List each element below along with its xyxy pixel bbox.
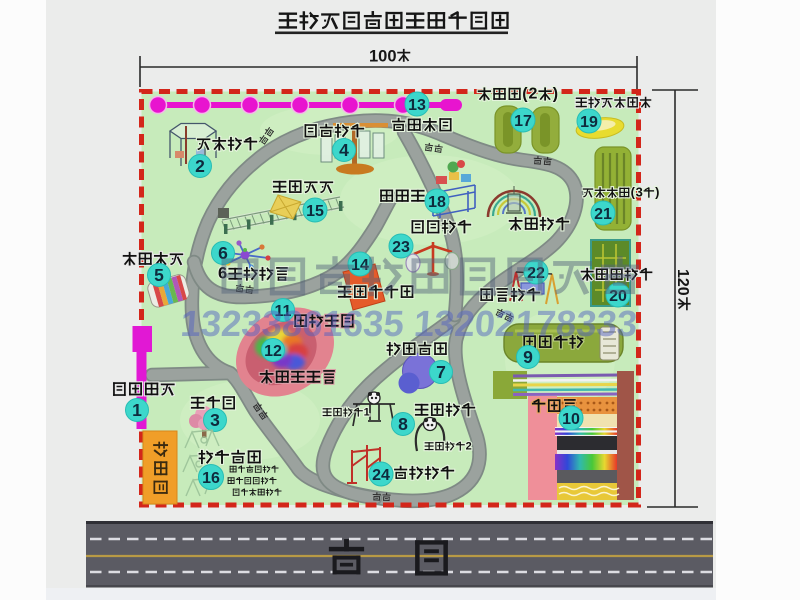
svg-text:10: 10 (562, 411, 580, 428)
svg-text:21: 21 (594, 206, 612, 223)
svg-text:13233861635 13202178333: 13233861635 13202178333 (179, 303, 638, 344)
svg-text:3: 3 (636, 184, 643, 199)
svg-text:3: 3 (210, 410, 220, 430)
svg-text:12: 12 (264, 343, 282, 360)
svg-text:9: 9 (523, 347, 533, 367)
svg-text:15: 15 (306, 203, 324, 220)
svg-text:4: 4 (339, 140, 349, 160)
svg-text:2: 2 (466, 440, 472, 452)
svg-text:): ) (553, 86, 558, 103)
svg-text:8: 8 (398, 414, 408, 434)
svg-text:120: 120 (674, 269, 691, 296)
svg-text:100: 100 (369, 48, 397, 66)
svg-text:23: 23 (392, 239, 410, 256)
svg-text:5: 5 (154, 265, 164, 285)
svg-text:1: 1 (132, 400, 142, 420)
svg-text:7: 7 (436, 362, 446, 382)
svg-text:2: 2 (195, 156, 205, 176)
svg-text:): ) (655, 184, 659, 199)
svg-text:24: 24 (372, 467, 390, 484)
svg-text:19: 19 (580, 114, 598, 131)
svg-text:1: 1 (364, 406, 370, 418)
svg-text:16: 16 (202, 470, 220, 487)
svg-text:13: 13 (408, 97, 426, 114)
svg-text:2: 2 (529, 86, 538, 103)
svg-text:17: 17 (514, 113, 532, 130)
svg-text:(: ( (522, 86, 528, 103)
svg-text:18: 18 (428, 194, 446, 211)
